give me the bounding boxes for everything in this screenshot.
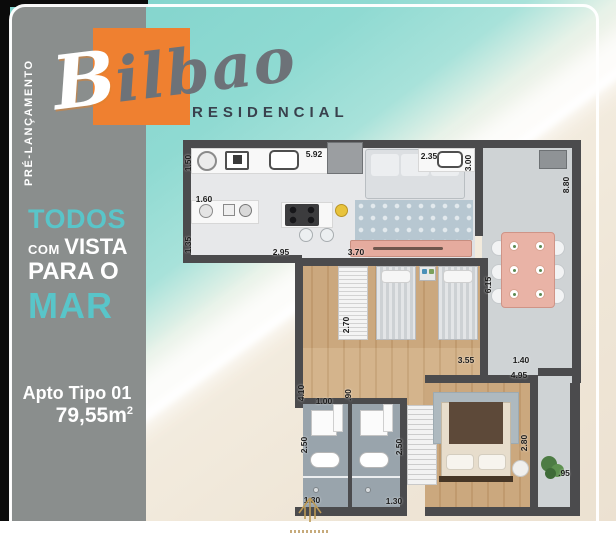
dimension-label: 3.70 xyxy=(343,247,369,257)
dimension-label: 2.35 xyxy=(416,151,442,161)
unit-area: 79,55m2 xyxy=(21,404,133,428)
headline-mar: MAR xyxy=(28,288,140,324)
dimension-label: 2.50 xyxy=(299,432,309,458)
dimension-label: 1.35 xyxy=(183,232,193,258)
dimension-label: 1.50 xyxy=(183,150,193,176)
headline-com-vista: COM VISTA xyxy=(28,236,140,258)
dimension-label: 1.30 xyxy=(381,496,407,506)
dimension-label: 3.55 xyxy=(453,355,479,365)
dimension-label: 1.60 xyxy=(191,194,217,204)
builder-logo-text-bar xyxy=(290,530,330,533)
logo-subtitle: RESIDENCIAL xyxy=(192,104,332,121)
dimension-label: .95 xyxy=(551,468,577,478)
unit-title: Apto Tipo 01 xyxy=(21,383,133,404)
dimension-label: 1.00 xyxy=(311,396,337,406)
unit-info: Apto Tipo 01 79,55m2 xyxy=(21,383,133,428)
dimension-label: 5.92 xyxy=(301,149,327,159)
headline-para-o: PARA O xyxy=(28,260,140,284)
dimension-label: 4.95 xyxy=(506,370,532,380)
dimension-label: 3.00 xyxy=(463,150,473,176)
dimension-labels: 1.505.922.353.008.801.601.352.953.706.15… xyxy=(183,140,581,516)
dimension-label: .90 xyxy=(343,382,353,408)
headline: TODOS COM VISTA PARA O MAR xyxy=(28,206,140,324)
dimension-label: 2.80 xyxy=(519,430,529,456)
flyer: PRÉ-LANÇAMENTO TODOS COM VISTA PARA O MA… xyxy=(0,0,616,547)
builder-logo-icon xyxy=(297,496,323,524)
dimension-label: 6.15 xyxy=(483,272,493,298)
dimension-label: 8.80 xyxy=(561,172,571,198)
prelaunch-badge: PRÉ-LANÇAMENTO xyxy=(23,36,35,186)
builder-logo xyxy=(288,496,332,533)
dimension-label: 2.50 xyxy=(394,434,404,460)
headline-todos: TODOS xyxy=(28,206,140,233)
dimension-label: 2.70 xyxy=(341,312,351,338)
floor-plan: 1.505.922.353.008.801.601.352.953.706.15… xyxy=(183,140,581,516)
dimension-label: 1.40 xyxy=(508,355,534,365)
dimension-label: 4.10 xyxy=(296,380,306,406)
page-edge-left xyxy=(0,0,10,521)
dimension-label: 2.95 xyxy=(268,247,294,257)
